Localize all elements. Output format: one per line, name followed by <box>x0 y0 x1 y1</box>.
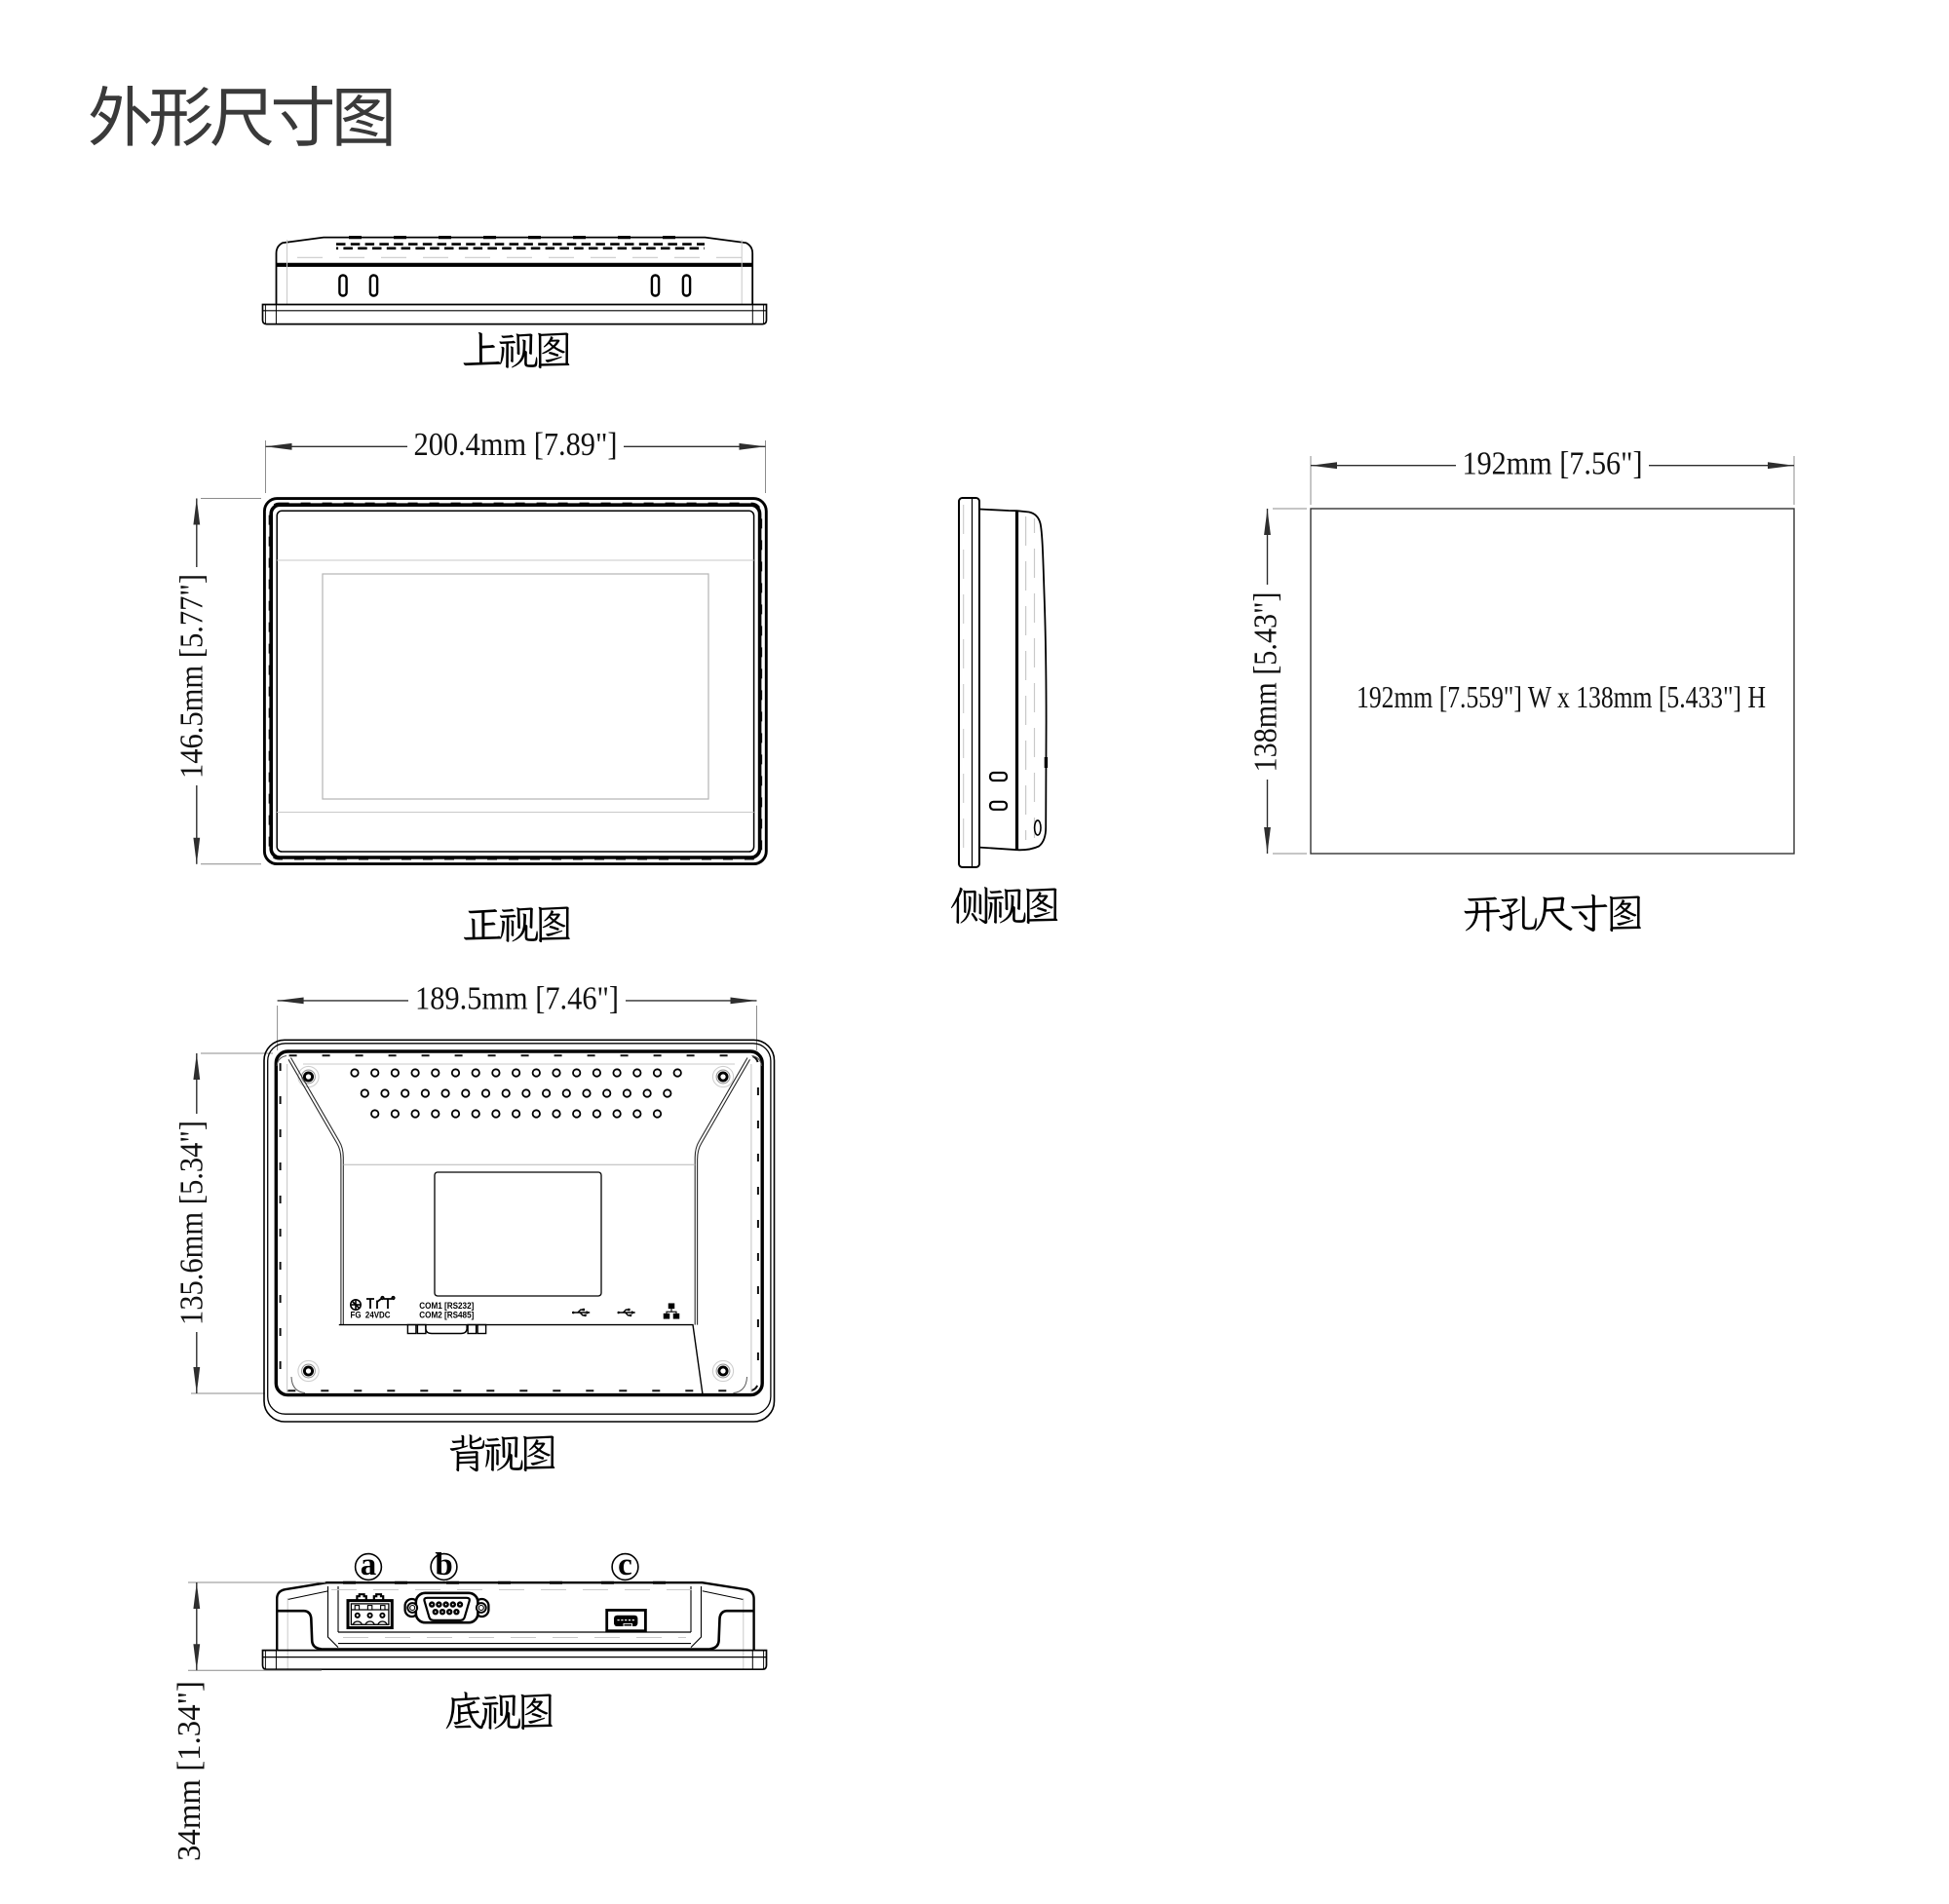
svg-text:COM1 [RS232]: COM1 [RS232] <box>419 1301 474 1311</box>
svg-text:135.6mm [5.34"]: 135.6mm [5.34"] <box>173 1121 210 1325</box>
svg-text:138mm [5.43"]: 138mm [5.43"] <box>1248 592 1284 773</box>
svg-text:200.4mm [7.89"]: 200.4mm [7.89"] <box>414 427 618 463</box>
svg-text:COM2 [RS485]: COM2 [RS485] <box>419 1311 474 1320</box>
svg-text:FG 24VDC: FG 24VDC <box>351 1311 391 1320</box>
svg-text:192mm [7.56"]: 192mm [7.56"] <box>1463 445 1643 481</box>
svg-text:192mm [7.559"] W x 138mm [5.43: 192mm [7.559"] W x 138mm [5.433"] H <box>1357 679 1766 714</box>
svg-text:189.5mm [7.46"]: 189.5mm [7.46"] <box>415 981 619 1017</box>
svg-text:c: c <box>618 1547 632 1582</box>
svg-text:a: a <box>361 1547 377 1582</box>
svg-text:b: b <box>435 1547 452 1582</box>
svg-text:34mm [1.34"]: 34mm [1.34"] <box>172 1681 208 1861</box>
svg-text:146.5mm [5.77"]: 146.5mm [5.77"] <box>173 574 210 779</box>
